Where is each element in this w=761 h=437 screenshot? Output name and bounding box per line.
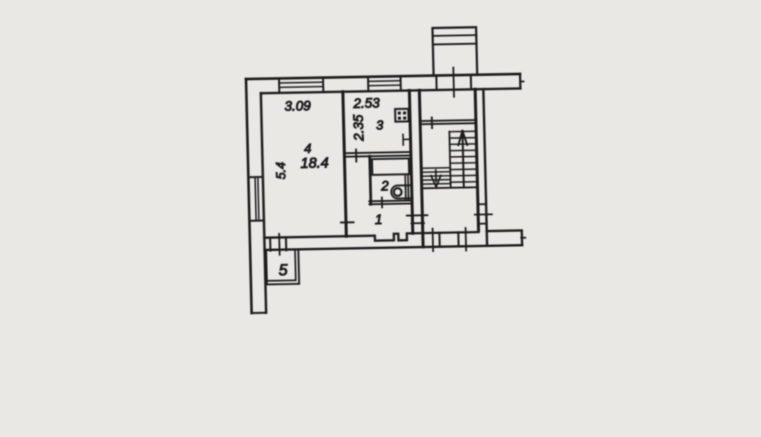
svg-text:2.53: 2.53	[352, 96, 380, 112]
svg-text:1: 1	[375, 212, 383, 227]
svg-text:3.09: 3.09	[284, 98, 311, 113]
svg-text:3: 3	[376, 117, 384, 132]
svg-text:2.35: 2.35	[351, 114, 367, 142]
svg-text:5.4: 5.4	[274, 162, 288, 180]
svg-text:2: 2	[380, 178, 389, 193]
svg-text:5: 5	[279, 262, 288, 279]
svg-text:18.4: 18.4	[300, 155, 329, 172]
svg-text:4: 4	[304, 141, 312, 156]
